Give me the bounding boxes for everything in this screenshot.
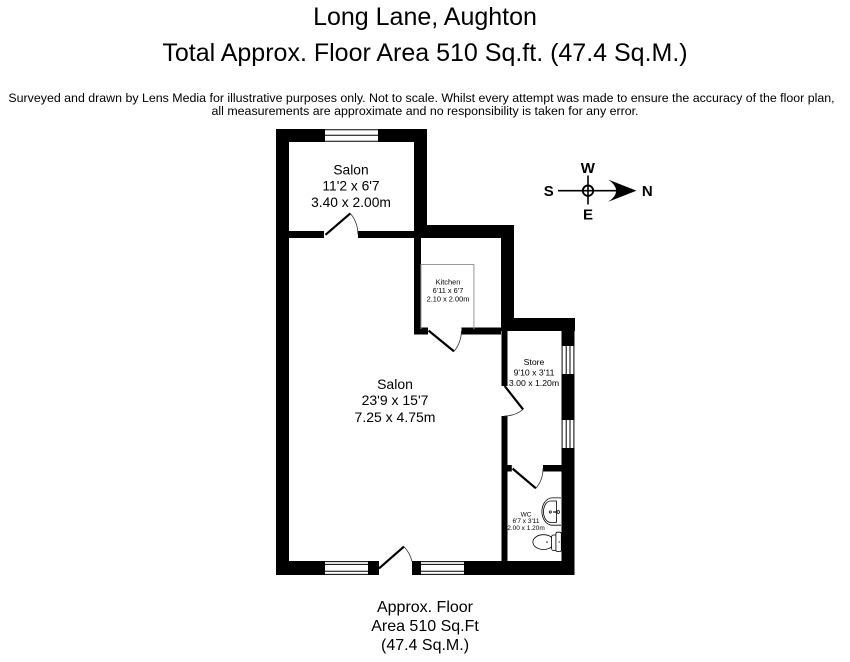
svg-text:11'2 x 6'7: 11'2 x 6'7 [322, 179, 379, 194]
svg-text:9'10 x 3'11: 9'10 x 3'11 [514, 367, 555, 377]
svg-text:N: N [642, 183, 653, 200]
svg-text:7.25 x 4.75m: 7.25 x 4.75m [355, 409, 436, 425]
svg-text:2.10 x 2.00m: 2.10 x 2.00m [427, 295, 470, 304]
svg-text:S: S [544, 183, 554, 200]
svg-text:Store: Store [524, 357, 545, 367]
svg-text:3.40 x 2.00m: 3.40 x 2.00m [311, 195, 391, 210]
svg-text:6'7 x 3'11: 6'7 x 3'11 [513, 518, 540, 525]
svg-text:Kitchen: Kitchen [436, 277, 461, 286]
svg-text:23'9 x 15'7: 23'9 x 15'7 [362, 392, 429, 408]
svg-text:2.00 x 1.20m: 2.00 x 1.20m [507, 525, 545, 532]
svg-text:Salon: Salon [377, 376, 413, 392]
svg-text:Salon: Salon [333, 162, 368, 177]
svg-text:W: W [581, 160, 596, 177]
svg-text:E: E [583, 207, 593, 224]
svg-text:3.00 x 1.20m: 3.00 x 1.20m [509, 378, 559, 388]
